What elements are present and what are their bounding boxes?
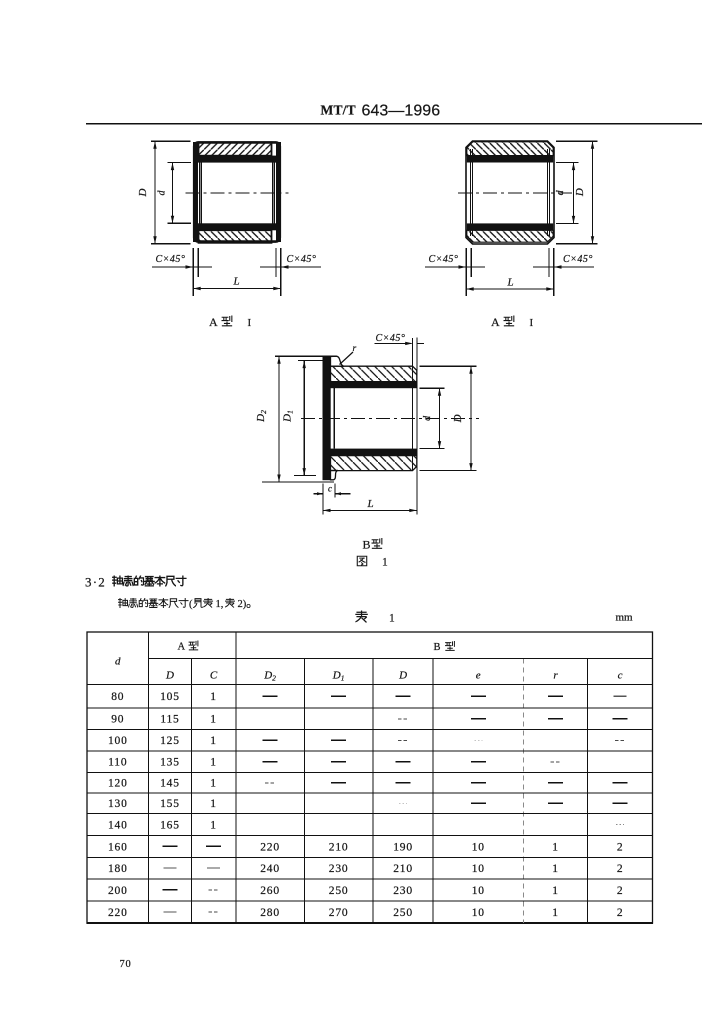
svg-text:C×45°: C×45°	[156, 254, 186, 265]
svg-text:160: 160	[108, 841, 128, 853]
svg-text:115: 115	[160, 714, 179, 726]
svg-text:I: I	[530, 317, 534, 329]
svg-text:250: 250	[329, 885, 349, 897]
svg-text:145: 145	[160, 778, 180, 790]
svg-text:D: D	[398, 670, 407, 682]
svg-text:d: d	[422, 415, 433, 421]
svg-text:1: 1	[552, 907, 559, 919]
svg-text:2: 2	[617, 907, 624, 919]
svg-text:120: 120	[108, 778, 128, 790]
svg-text:105: 105	[160, 691, 180, 703]
svg-text:220: 220	[108, 907, 128, 919]
svg-text:90: 90	[111, 714, 124, 726]
svg-text:1: 1	[389, 613, 395, 625]
svg-text:220: 220	[260, 841, 280, 853]
svg-text:C×45°: C×45°	[563, 254, 593, 265]
svg-text:L: L	[232, 276, 239, 288]
svg-text:D: D	[137, 188, 149, 197]
svg-text:1: 1	[210, 714, 217, 726]
svg-text:1: 1	[552, 863, 559, 875]
svg-text:d: d	[156, 190, 167, 196]
svg-text:10: 10	[472, 885, 485, 897]
svg-text:260: 260	[260, 885, 280, 897]
svg-text:C×45°: C×45°	[429, 254, 459, 265]
svg-text:10: 10	[472, 907, 485, 919]
svg-text:(: (	[189, 599, 193, 610]
svg-text:100: 100	[108, 735, 128, 747]
svg-text:1: 1	[210, 735, 217, 747]
svg-text:D: D	[574, 188, 586, 197]
svg-text:2): 2)	[238, 599, 247, 610]
svg-text:c: c	[328, 484, 332, 494]
svg-text:190: 190	[393, 841, 413, 853]
svg-text:C: C	[210, 670, 218, 682]
svg-text:A: A	[209, 315, 218, 329]
svg-text:B: B	[434, 642, 441, 653]
svg-text:A: A	[491, 315, 500, 329]
svg-text:D2: D2	[263, 670, 276, 683]
svg-text:2: 2	[617, 885, 624, 897]
svg-text:1: 1	[382, 557, 388, 569]
svg-text:L: L	[506, 277, 513, 289]
svg-text:10: 10	[472, 863, 485, 875]
svg-text:280: 280	[260, 907, 280, 919]
svg-text:D1: D1	[282, 410, 295, 423]
svg-text:L: L	[366, 498, 373, 510]
svg-text:d: d	[555, 189, 566, 195]
svg-text:130: 130	[108, 798, 128, 810]
svg-text:1: 1	[552, 841, 559, 853]
svg-text:r: r	[553, 670, 558, 682]
svg-text:200: 200	[108, 885, 128, 897]
svg-text:2: 2	[617, 863, 624, 875]
svg-text:A: A	[178, 642, 186, 653]
svg-text:165: 165	[160, 819, 180, 831]
svg-text:135: 135	[160, 757, 180, 769]
svg-text:230: 230	[393, 885, 413, 897]
svg-text:270: 270	[329, 907, 349, 919]
svg-text:d: d	[115, 656, 121, 668]
svg-text:B: B	[363, 538, 371, 552]
svg-text:1,: 1,	[216, 599, 224, 610]
svg-text:1: 1	[210, 819, 217, 831]
svg-text:230: 230	[329, 863, 349, 875]
svg-text:1: 1	[210, 757, 217, 769]
svg-text:C×45°: C×45°	[287, 254, 317, 265]
svg-text:180: 180	[108, 863, 128, 875]
svg-text:1: 1	[210, 798, 217, 810]
svg-text:D: D	[165, 670, 174, 682]
svg-text:210: 210	[329, 841, 349, 853]
svg-text:1: 1	[210, 778, 217, 790]
svg-text:140: 140	[108, 819, 128, 831]
svg-text:c: c	[618, 670, 623, 682]
svg-text:240: 240	[260, 863, 280, 875]
svg-text:D1: D1	[332, 670, 345, 683]
svg-text:125: 125	[160, 735, 180, 747]
svg-text:1: 1	[552, 885, 559, 897]
svg-text:MT/T: MT/T	[321, 103, 356, 118]
svg-text:70: 70	[120, 959, 132, 970]
svg-text:e: e	[476, 670, 481, 682]
svg-text:I: I	[248, 317, 252, 329]
svg-text:80: 80	[111, 691, 124, 703]
svg-text:155: 155	[160, 798, 180, 810]
svg-text:250: 250	[393, 907, 413, 919]
svg-text:D: D	[452, 414, 464, 423]
svg-text:1: 1	[210, 691, 217, 703]
svg-text:643—1996: 643—1996	[362, 103, 441, 120]
svg-text:2: 2	[617, 841, 624, 853]
svg-text:210: 210	[393, 863, 413, 875]
svg-text:10: 10	[472, 841, 485, 853]
svg-text:110: 110	[108, 757, 127, 769]
svg-text:C×45°: C×45°	[376, 333, 406, 344]
svg-text:3·2: 3·2	[85, 575, 106, 590]
svg-text:D2: D2	[255, 410, 268, 423]
svg-text:mm: mm	[616, 612, 634, 624]
